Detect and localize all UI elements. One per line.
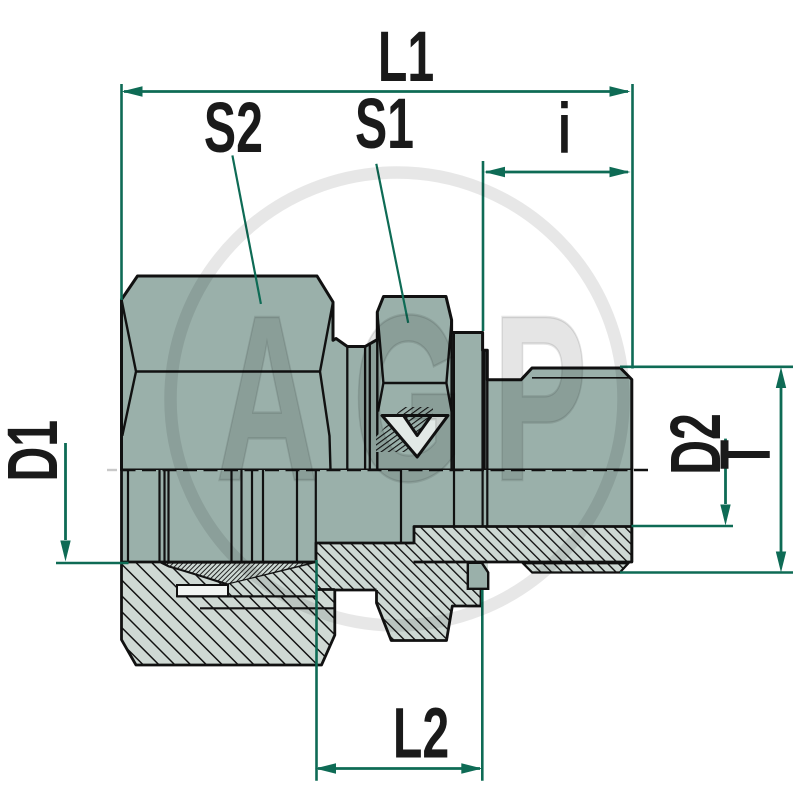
svg-text:T: T [706,440,786,469]
svg-text:S2: S2 [204,88,263,168]
svg-text:P: P [493,267,588,531]
svg-text:i: i [558,89,571,169]
svg-text:S1: S1 [355,84,414,164]
svg-text:G: G [353,267,464,531]
svg-text:D1: D1 [0,420,72,482]
svg-text:L2: L2 [393,693,449,773]
svg-text:A: A [216,267,319,531]
